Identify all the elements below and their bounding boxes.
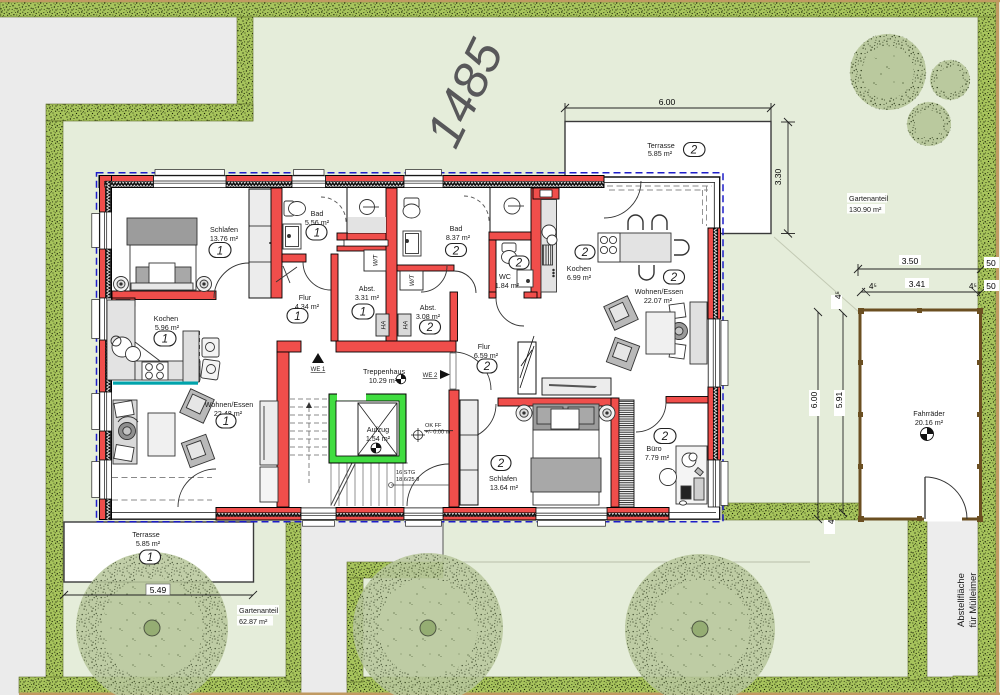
- svg-text:13.76 m²: 13.76 m²: [210, 234, 239, 243]
- svg-text:5.85 m²: 5.85 m²: [648, 149, 673, 158]
- svg-text:W/T: W/T: [373, 254, 380, 267]
- svg-text:2: 2: [497, 458, 505, 470]
- svg-text:8.37 m²: 8.37 m²: [446, 233, 471, 242]
- svg-text:1: 1: [294, 311, 300, 323]
- svg-text:Wohnen/Essen: Wohnen/Essen: [205, 400, 254, 409]
- svg-text:1: 1: [217, 246, 223, 258]
- svg-text:Gartenanteil: Gartenanteil: [849, 194, 889, 203]
- svg-text:2: 2: [452, 246, 460, 258]
- svg-text:16 STG: 16 STG: [396, 470, 415, 476]
- svg-text:50: 50: [986, 281, 996, 291]
- svg-text:4⁵: 4⁵: [827, 516, 836, 524]
- svg-text:Terrasse: Terrasse: [132, 530, 160, 539]
- svg-text:WE 2: WE 2: [423, 373, 438, 379]
- svg-text:Flur: Flur: [478, 342, 491, 351]
- svg-text:Flur: Flur: [299, 293, 312, 302]
- svg-text:Kochen: Kochen: [567, 264, 591, 273]
- svg-text:18.6/25.9: 18.6/25.9: [396, 477, 419, 483]
- svg-text:HA: HA: [403, 321, 410, 330]
- svg-text:Abst.: Abst.: [420, 303, 436, 312]
- svg-text:Büro: Büro: [646, 444, 661, 453]
- svg-text:2: 2: [670, 272, 678, 284]
- svg-text:1.84 m²: 1.84 m²: [495, 281, 520, 290]
- svg-text:10.29 m²: 10.29 m²: [369, 376, 398, 385]
- svg-text:3.30: 3.30: [773, 168, 783, 185]
- svg-text:Wohnen/Essen: Wohnen/Essen: [635, 287, 684, 296]
- svg-text:13.64 m²: 13.64 m²: [490, 483, 519, 492]
- svg-text:Schlafen: Schlafen: [489, 474, 517, 483]
- svg-text:HA: HA: [381, 321, 388, 330]
- svg-text:OK FF: OK FF: [425, 423, 442, 429]
- svg-text:für Mülleimer: für Mülleimer: [968, 573, 979, 628]
- svg-text:6.00: 6.00: [659, 97, 676, 107]
- svg-text:1: 1: [314, 228, 320, 240]
- svg-text:Abstellfläche: Abstellfläche: [956, 573, 967, 627]
- svg-text:Bad: Bad: [450, 224, 463, 233]
- svg-text:2: 2: [426, 322, 434, 334]
- svg-text:1: 1: [162, 334, 168, 346]
- svg-text:62.87 m²: 62.87 m²: [239, 617, 268, 626]
- svg-text:3.31 m²: 3.31 m²: [355, 293, 380, 302]
- svg-text:Gartenanteil: Gartenanteil: [239, 606, 279, 615]
- svg-text:1: 1: [147, 552, 153, 564]
- svg-text:6.00: 6.00: [809, 391, 819, 408]
- svg-text:WE 1: WE 1: [311, 367, 326, 373]
- svg-text:4⁵: 4⁵: [834, 291, 843, 299]
- svg-text:Bad: Bad: [311, 209, 324, 218]
- svg-text:2: 2: [483, 361, 491, 373]
- svg-text:1: 1: [223, 416, 229, 428]
- svg-text:Abst.: Abst.: [359, 284, 375, 293]
- svg-text:+/- 0.00 m: +/- 0.00 m: [425, 430, 451, 436]
- svg-text:5.91: 5.91: [834, 391, 844, 408]
- svg-text:1.54 m²: 1.54 m²: [366, 434, 391, 443]
- svg-text:5.49: 5.49: [150, 585, 167, 595]
- svg-text:22.07 m²: 22.07 m²: [644, 296, 673, 305]
- svg-text:Kochen: Kochen: [154, 314, 178, 323]
- svg-text:3.50: 3.50: [902, 256, 919, 266]
- svg-text:2: 2: [581, 247, 589, 259]
- svg-text:3.41: 3.41: [909, 279, 926, 289]
- svg-text:Fahrräder: Fahrräder: [913, 409, 945, 418]
- svg-text:4⁵: 4⁵: [969, 282, 977, 291]
- svg-text:130.90 m²: 130.90 m²: [849, 205, 882, 214]
- svg-text:Schlafen: Schlafen: [210, 225, 238, 234]
- svg-text:W/T: W/T: [409, 274, 416, 287]
- svg-text:20.16 m²: 20.16 m²: [915, 418, 944, 427]
- svg-text:Aufzug: Aufzug: [367, 425, 389, 434]
- svg-text:6.99 m²: 6.99 m²: [567, 273, 592, 282]
- svg-text:WC: WC: [499, 272, 511, 281]
- svg-text:2: 2: [661, 431, 669, 443]
- svg-text:4⁵: 4⁵: [869, 282, 877, 291]
- svg-text:5.85 m²: 5.85 m²: [136, 539, 161, 548]
- svg-text:2: 2: [690, 145, 698, 157]
- svg-text:7.79 m²: 7.79 m²: [645, 453, 670, 462]
- svg-text:50: 50: [986, 258, 996, 268]
- svg-text:1: 1: [360, 307, 366, 319]
- svg-text:2: 2: [515, 258, 523, 270]
